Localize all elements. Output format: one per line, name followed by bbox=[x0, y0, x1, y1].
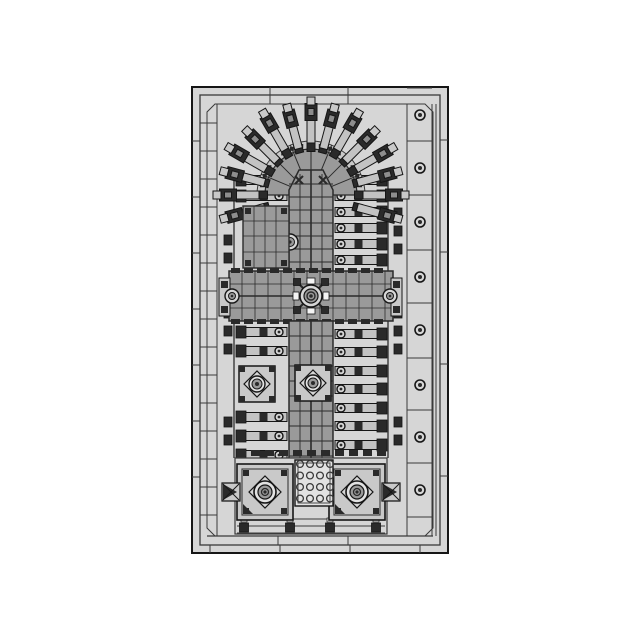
west-top-tile bbox=[349, 450, 358, 456]
platform-corner-block bbox=[325, 395, 331, 401]
transept-edge-tile bbox=[309, 268, 318, 273]
transept-edge-tile bbox=[283, 268, 292, 273]
apse-buttress-block-cap bbox=[231, 212, 239, 220]
outer-chapel-block-right bbox=[394, 326, 402, 336]
apse-flying-buttress bbox=[355, 189, 410, 201]
buttress-pier bbox=[377, 402, 387, 414]
chapel-roof-panel bbox=[243, 206, 289, 268]
buttress-mid-block bbox=[355, 367, 363, 375]
portal-buttress-foot bbox=[372, 523, 381, 532]
border-stud-center bbox=[418, 220, 422, 224]
tower-side-pinnacle bbox=[222, 483, 240, 501]
flying-buttress-left bbox=[236, 345, 287, 357]
border-stud-center bbox=[418, 113, 422, 117]
apse-buttress-block-cap bbox=[231, 171, 239, 179]
buttress-pier bbox=[236, 430, 246, 442]
crossing-corner-block bbox=[294, 307, 301, 314]
crossing-dot bbox=[309, 294, 313, 298]
transept-end-pinnacle-dot bbox=[231, 295, 234, 298]
platform-corner-block bbox=[295, 365, 301, 371]
apse-buttress-block-cap bbox=[328, 115, 336, 123]
transept-end-pinnacle-dot bbox=[389, 295, 392, 298]
west-top-tile bbox=[279, 450, 288, 456]
crossing-tab bbox=[307, 308, 315, 314]
west-top-tile bbox=[321, 450, 330, 456]
apse-buttress-block-cap bbox=[383, 171, 391, 179]
buttress-mid-block bbox=[260, 413, 268, 421]
platform-corner-block bbox=[269, 366, 275, 372]
transept-edge-tile bbox=[348, 268, 357, 273]
flying-buttress-left bbox=[236, 326, 287, 338]
buttress-pier bbox=[236, 326, 246, 338]
crossing-tab bbox=[323, 292, 329, 300]
buttress-mid-block bbox=[355, 224, 363, 232]
transept-edge-tile bbox=[374, 319, 383, 324]
portal-buttress-foot bbox=[240, 523, 249, 532]
apse-buttress-flyer bbox=[307, 119, 315, 143]
transept-edge-tile bbox=[361, 319, 370, 324]
west-tower bbox=[329, 464, 385, 520]
platform-corner-block bbox=[239, 396, 245, 402]
tower-corner-block bbox=[373, 470, 379, 476]
portal-buttress-foot bbox=[286, 523, 295, 532]
buttress-mid-block bbox=[355, 256, 363, 264]
apse-buttress-block-cap bbox=[225, 192, 232, 198]
technical-drawing-page bbox=[0, 0, 640, 640]
apse-flying-buttress bbox=[305, 97, 317, 152]
buttress-pier bbox=[377, 222, 387, 234]
border-stud-center bbox=[418, 275, 422, 279]
transept-edge-tile bbox=[348, 319, 357, 324]
transept-edge-tile bbox=[335, 319, 344, 324]
apse-buttress-nub bbox=[259, 191, 268, 199]
apse-ring-tick bbox=[355, 174, 359, 178]
buttress-mid-block bbox=[260, 328, 268, 336]
transept-edge-tile bbox=[257, 268, 266, 273]
buttress-pier bbox=[377, 254, 387, 266]
buttress-pier bbox=[377, 439, 387, 451]
transept-edge-tile bbox=[244, 319, 253, 324]
buttress-pinnacle-dot bbox=[340, 425, 343, 428]
platform-corner-block bbox=[269, 396, 275, 402]
buttress-mid-block bbox=[355, 348, 363, 356]
transept-edge-tile bbox=[296, 268, 305, 273]
outer-chapel-block-left bbox=[224, 235, 232, 245]
flying-buttress-right bbox=[335, 402, 387, 414]
flying-buttress-right bbox=[335, 254, 387, 266]
buttress-pinnacle-dot bbox=[340, 227, 343, 230]
apse-buttress-nub bbox=[355, 191, 364, 199]
outer-chapel-block-left bbox=[224, 344, 232, 354]
buttress-pier bbox=[377, 346, 387, 358]
apse-buttress-outer-cap bbox=[219, 213, 229, 223]
outer-chapel-block-right bbox=[394, 344, 402, 354]
buttress-mid-block bbox=[260, 347, 268, 355]
buttress-pinnacle-dot bbox=[340, 211, 343, 214]
buttress-pinnacle-dot bbox=[340, 351, 343, 354]
platform-dot bbox=[311, 381, 315, 385]
transept-edge-tile bbox=[244, 268, 253, 273]
crossing-tab bbox=[293, 292, 299, 300]
flying-buttress-right bbox=[335, 383, 387, 395]
flying-buttress-right bbox=[335, 365, 387, 377]
west-top-tile bbox=[363, 450, 372, 456]
transept-edge-tile bbox=[231, 319, 240, 324]
west-top-tile bbox=[251, 450, 260, 456]
crossing-spire-base bbox=[293, 278, 329, 314]
buttress-pinnacle-dot bbox=[340, 333, 343, 336]
apse-buttress-outer-cap bbox=[393, 213, 403, 223]
flying-buttress-right bbox=[335, 420, 387, 432]
border-stud-center bbox=[418, 435, 422, 439]
buttress-pier bbox=[377, 328, 387, 340]
transept-edge-tile bbox=[361, 268, 370, 273]
transept-end-block bbox=[393, 281, 400, 288]
border-stud-center bbox=[418, 166, 422, 170]
crossing-corner-block bbox=[294, 279, 301, 286]
apse-ring-tick bbox=[290, 147, 294, 151]
roof-platform-ornament bbox=[295, 365, 331, 401]
chapel-corner-block bbox=[245, 260, 251, 266]
west-front bbox=[222, 450, 400, 534]
tower-corner-block bbox=[281, 470, 287, 476]
buttress-pier bbox=[377, 238, 387, 250]
buttress-pinnacle-dot bbox=[340, 243, 343, 246]
apse-buttress-outer-cap bbox=[329, 103, 339, 113]
west-top-tile bbox=[237, 450, 246, 456]
transept-edge-tile bbox=[270, 268, 279, 273]
buttress-pinnacle-dot bbox=[278, 331, 281, 334]
transept-edge-tile bbox=[231, 268, 240, 273]
roof-platform-ornament bbox=[239, 366, 275, 402]
transept-edge-tile bbox=[374, 268, 383, 273]
cathedral-top-view-drawing bbox=[0, 0, 640, 640]
border-stud-center bbox=[418, 328, 422, 332]
outer-chapel-block-right bbox=[394, 244, 402, 254]
buttress-pier bbox=[377, 383, 387, 395]
flying-buttress-left bbox=[236, 411, 287, 423]
west-tower bbox=[237, 464, 293, 520]
transept-end-block bbox=[221, 281, 228, 288]
transept-end-block bbox=[393, 306, 400, 313]
outer-chapel-block-left bbox=[224, 326, 232, 336]
tower-dot bbox=[263, 490, 266, 493]
buttress-pinnacle-dot bbox=[340, 407, 343, 410]
portal-buttress-foot bbox=[326, 523, 335, 532]
transept-edge-tile bbox=[322, 268, 331, 273]
apse-buttress-block-cap bbox=[287, 115, 295, 123]
platform-corner-block bbox=[295, 395, 301, 401]
apse-buttress-flyer bbox=[363, 191, 387, 199]
apse-buttress-outer-cap bbox=[283, 103, 293, 113]
west-top-tile bbox=[293, 450, 302, 456]
buttress-mid-block bbox=[355, 422, 363, 430]
tower-side-pinnacle bbox=[382, 483, 400, 501]
buttress-pinnacle-dot bbox=[278, 416, 281, 419]
west-top-tile bbox=[307, 450, 316, 456]
transept-edge-tile bbox=[257, 319, 266, 324]
buttress-pinnacle-dot bbox=[340, 259, 343, 262]
buttress-pier bbox=[236, 345, 246, 357]
buttress-mid-block bbox=[355, 404, 363, 412]
outer-chapel-block-right bbox=[394, 435, 402, 445]
chapel-corner-block bbox=[245, 208, 251, 214]
buttress-mid-block bbox=[355, 330, 363, 338]
platform-corner-block bbox=[325, 365, 331, 371]
border-stud-center bbox=[418, 488, 422, 492]
tower-corner-block bbox=[281, 508, 287, 514]
cathedral-model bbox=[213, 97, 409, 534]
buttress-pinnacle-dot bbox=[278, 350, 281, 353]
buttress-mid-block bbox=[355, 385, 363, 393]
border-stud-center bbox=[418, 383, 422, 387]
transept-end-block bbox=[221, 306, 228, 313]
apse-buttress-block-cap bbox=[391, 192, 398, 198]
chapel-corner-block bbox=[281, 260, 287, 266]
apse-buttress-flyer bbox=[235, 191, 259, 199]
crossing-corner-block bbox=[322, 307, 329, 314]
buttress-pier bbox=[377, 420, 387, 432]
outer-chapel-block-left bbox=[224, 417, 232, 427]
crossing-tab bbox=[307, 278, 315, 284]
apse-buttress-outer-cap bbox=[213, 191, 221, 199]
platform-dot bbox=[255, 382, 259, 386]
platform-corner-block bbox=[239, 366, 245, 372]
flying-buttress-right bbox=[335, 238, 387, 250]
apse-ring-tick bbox=[263, 174, 267, 178]
apse-buttress-outer-cap bbox=[307, 97, 315, 105]
west-top-tile bbox=[377, 450, 386, 456]
apse-ring-tick bbox=[328, 147, 332, 151]
transept bbox=[219, 268, 402, 324]
apse-buttress-block-cap bbox=[308, 109, 314, 116]
tower-dot bbox=[355, 490, 358, 493]
west-top-tile bbox=[265, 450, 274, 456]
buttress-mid-block bbox=[355, 240, 363, 248]
apse-buttress-outer-cap bbox=[401, 191, 409, 199]
apse-buttress-outer-cap bbox=[219, 167, 229, 177]
apse-buttress-outer-cap bbox=[393, 167, 403, 177]
choir-left-chapel bbox=[243, 206, 289, 268]
buttress-mid-block bbox=[260, 432, 268, 440]
transept-edge-tile bbox=[335, 268, 344, 273]
flying-buttress-right bbox=[335, 328, 387, 340]
crossing-corner-block bbox=[322, 279, 329, 286]
buttress-mid-block bbox=[355, 441, 363, 449]
outer-chapel-block-left bbox=[224, 253, 232, 263]
tower-corner-block bbox=[335, 470, 341, 476]
tower-corner-block bbox=[373, 508, 379, 514]
chapel-corner-block bbox=[281, 208, 287, 214]
outer-chapel-block-right bbox=[394, 226, 402, 236]
transept-edge-tile bbox=[270, 319, 279, 324]
portal-roof-panel bbox=[295, 460, 333, 506]
outer-chapel-block-right bbox=[394, 417, 402, 427]
apse-buttress-block-cap bbox=[383, 212, 391, 220]
outer-chapel-block-left bbox=[224, 435, 232, 445]
buttress-pier bbox=[236, 411, 246, 423]
flying-buttress-right bbox=[335, 346, 387, 358]
apse-buttress-nub bbox=[307, 143, 315, 152]
tower-corner-block bbox=[243, 470, 249, 476]
flying-buttress-right bbox=[335, 439, 387, 451]
flying-buttress-right bbox=[335, 222, 387, 234]
west-top-tile bbox=[335, 450, 344, 456]
buttress-pinnacle-dot bbox=[340, 388, 343, 391]
apse-flying-buttress bbox=[213, 189, 268, 201]
buttress-pier bbox=[377, 365, 387, 377]
buttress-pinnacle-dot bbox=[340, 444, 343, 447]
buttress-pinnacle-dot bbox=[278, 435, 281, 438]
buttress-pinnacle-dot bbox=[340, 370, 343, 373]
flying-buttress-left bbox=[236, 430, 287, 442]
